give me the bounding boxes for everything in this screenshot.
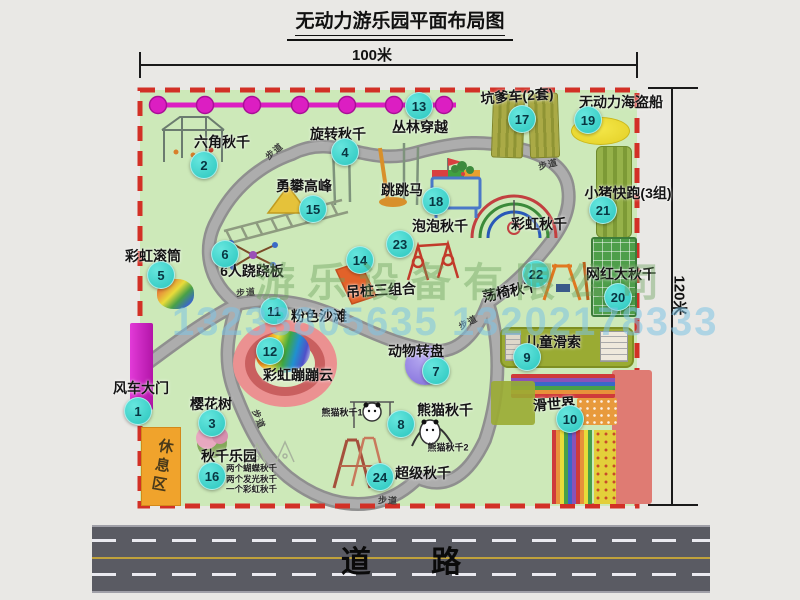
swing-paradise-detail-line: 两个发光秋千 — [226, 474, 277, 485]
label-panda-swing-2: 熊猫秋千2 — [427, 441, 468, 454]
attraction-label-12: 彩虹蹦蹦云 — [263, 365, 333, 385]
rest-area-box: 休息区 — [141, 427, 181, 506]
swing-paradise-detail-line: 一个彩虹秋千 — [226, 484, 277, 495]
attraction-badge-16: 16 — [198, 462, 226, 490]
road: 道 路 — [92, 525, 710, 593]
attraction-label-24: 超级秋千 — [395, 463, 451, 483]
attraction-label-15: 勇攀高峰 — [276, 176, 332, 196]
slide-world-block — [612, 370, 652, 504]
attraction-label-8: 熊猫秋千 — [417, 400, 473, 420]
label-rainbow-swing: 彩虹秋千 — [511, 214, 567, 234]
attraction-badge-15: 15 — [299, 195, 327, 223]
attraction-label-13: 丛林穿越 — [392, 117, 448, 137]
attraction-badge-9: 9 — [513, 343, 541, 371]
attraction-badge-19: 19 — [574, 106, 602, 134]
page-title: 无动力游乐园平面布局图 — [0, 6, 800, 41]
attraction-badge-4: 4 — [331, 138, 359, 166]
attraction-badge-21: 21 — [589, 196, 617, 224]
attraction-badge-2: 2 — [190, 151, 218, 179]
attraction-label-2: 六角秋千 — [194, 132, 250, 152]
attraction-badge-6: 6 — [211, 240, 239, 268]
road-label: 道 路 — [92, 527, 710, 591]
phone-watermark: 13233805635 13202178333 — [172, 300, 719, 345]
path-label-3: 步道 — [235, 285, 256, 300]
width-dimension-label: 100米 — [352, 44, 392, 65]
attraction-badge-24: 24 — [366, 463, 394, 491]
attraction-badge-18: 18 — [422, 187, 450, 215]
attraction-badge-17: 17 — [508, 105, 536, 133]
attraction-badge-10: 10 — [556, 405, 584, 433]
attraction-badge-8: 8 — [387, 410, 415, 438]
path-label-6: 步道 — [378, 493, 398, 507]
rest-area-label: 休息区 — [146, 437, 177, 497]
swing-paradise-detail-line: 两个蝴蝶秋千 — [226, 463, 277, 474]
attraction-badge-7: 7 — [422, 357, 450, 385]
attraction-label-1: 风车大门 — [113, 378, 169, 398]
attraction-badge-3: 3 — [198, 409, 226, 437]
attraction-label-23: 泡泡秋千 — [412, 216, 468, 236]
attraction-badge-5: 5 — [147, 261, 175, 289]
attraction-badge-13: 13 — [405, 92, 433, 120]
slide-world-platform — [491, 381, 535, 425]
slide-world-vertical-slides — [552, 430, 592, 504]
playground-plan-map: 无动力游乐园平面布局图 100米 120米 — [0, 0, 800, 600]
swing-paradise-details: 两个蝴蝶秋千两个发光秋千一个彩虹秋千 — [226, 463, 277, 495]
label-panda-swing-1: 熊猫秋千1 — [321, 406, 362, 419]
slide-world-yellow-lane — [594, 430, 616, 504]
attraction-badge-1: 1 — [124, 397, 152, 425]
page-title-text: 无动力游乐园平面布局图 — [287, 6, 512, 41]
attraction-label-18: 跳跳马 — [381, 180, 423, 200]
